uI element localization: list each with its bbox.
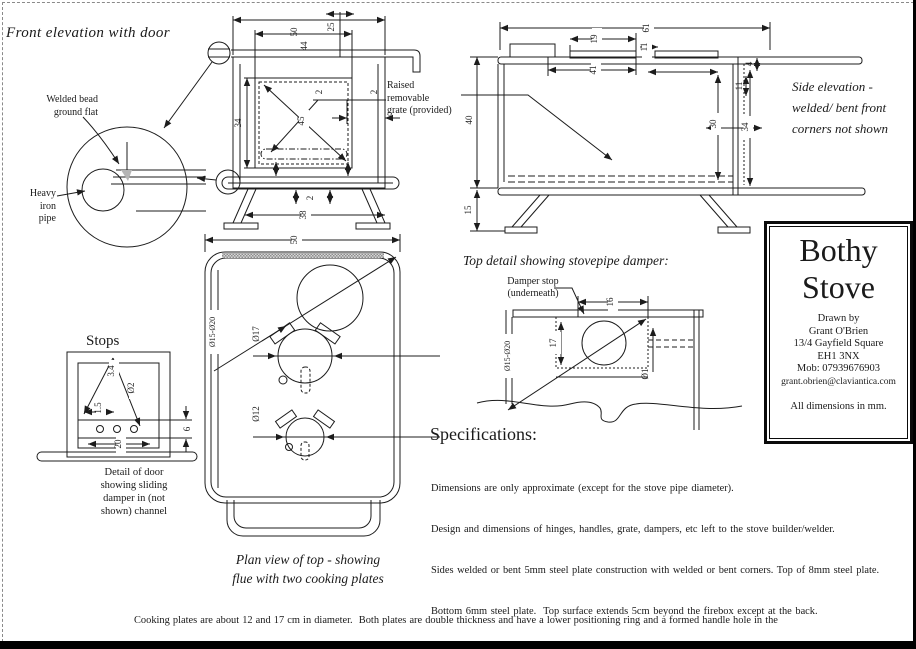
dim-front-leg-span: 38 xyxy=(298,210,308,220)
units-note: All dimensions in mm. xyxy=(770,401,907,412)
side-caption-line1: Side elevation - xyxy=(792,76,916,97)
dim-side-back-height: 34 xyxy=(740,122,750,132)
raised-grate-line2: removable xyxy=(387,93,469,106)
dim-front-gap-side: 2 xyxy=(369,90,379,95)
dim-front-door-width: 44 xyxy=(299,41,309,51)
note-line-1: Cooking plates are about 12 and 17 cm in… xyxy=(134,615,916,627)
mobile-number: Mob: 07939676903 xyxy=(770,363,907,376)
dim-plan-width: 50 xyxy=(289,235,299,245)
specifications-heading: Specifications: xyxy=(430,424,537,445)
address-line2: EH1 3NX xyxy=(770,351,907,364)
dim-stops-hole-spacing: 1.5 xyxy=(93,402,103,414)
plan-view-caption: Plan view of top - showing flue with two… xyxy=(212,550,404,588)
heavy-pipe-line3: pipe xyxy=(8,213,56,226)
heavy-pipe-line1: Heavy xyxy=(8,188,56,201)
damper-stop-line1: Damper stop xyxy=(496,276,570,288)
spec-line-3: Sides welded or bent 5mm steel plate con… xyxy=(431,564,915,578)
door-caption-line3: damper in (not xyxy=(82,492,186,505)
door-detail-caption: Detail of door showing sliding damper in… xyxy=(82,466,186,518)
right-foot-pad xyxy=(356,223,390,229)
author-name: Grant O'Brien xyxy=(770,326,907,339)
raised-grate-line1: Raised xyxy=(387,80,469,93)
dim-side-flue-gap: 30 xyxy=(708,119,718,129)
dim-stops-hole: Ø2 xyxy=(126,383,136,394)
dim-plan-small-plate: Ø12 xyxy=(251,406,261,422)
spec-line-2: Design and dimensions of hinges, handles… xyxy=(431,523,915,537)
front-elevation-title: Front elevation with door xyxy=(6,25,170,42)
pipe-detail-circle xyxy=(57,117,240,247)
page-edge-bottom xyxy=(0,641,916,649)
spec-line-1: Dimensions are only approximate (except … xyxy=(431,482,915,496)
damper-detail-title: Top detail showing stovepipe damper: xyxy=(463,253,669,269)
side-elevation-caption: Side elevation - welded/ bent front corn… xyxy=(792,76,916,139)
plan-caption-line2: flue with two cooking plates xyxy=(212,569,404,588)
dim-front-gap-bottom: 2 xyxy=(305,196,315,201)
welded-bead-line2: ground flat xyxy=(16,107,98,120)
dim-side-back-lip: 4 xyxy=(744,61,754,66)
dim-side-plate-gap: 11 xyxy=(639,43,649,52)
dim-front-width: 50 xyxy=(289,27,299,37)
damper-handle xyxy=(510,44,555,57)
raised-grate-line3: grate (provided) xyxy=(387,105,469,118)
dim-side-overall: 61 xyxy=(641,24,651,33)
dim-side-leg-height: 15 xyxy=(463,205,473,215)
flue-hole-detail xyxy=(582,321,626,365)
dim-damper-depth: 17 xyxy=(548,338,558,348)
ash-shelf-plan xyxy=(227,500,380,536)
side-caption-line3: corners not shown xyxy=(792,118,916,139)
dim-stops-slot-width: 20 xyxy=(113,439,123,449)
welded-bead-label: Welded bead ground flat xyxy=(16,94,98,119)
pipe-end-balloon xyxy=(208,42,230,64)
dim-damper-rod: Ø1 xyxy=(640,369,650,380)
pipe-cross-section xyxy=(82,169,124,211)
dim-side-plate-front: 41 xyxy=(588,66,598,75)
email-address: grant.obrien@claviantica.com xyxy=(770,376,907,388)
dim-stops-slot-height: 6 xyxy=(182,426,192,431)
damper-stop-line2: (underneath) xyxy=(496,288,570,300)
plan-caption-line1: Plan view of top - showing xyxy=(212,550,404,569)
stops-title: Stops xyxy=(86,333,119,350)
left-foot-pad xyxy=(224,223,258,229)
grate-side xyxy=(508,176,733,182)
door-caption-line4: shown) channel xyxy=(82,505,186,518)
door-caption-line2: showing sliding xyxy=(82,479,186,492)
weld-bead xyxy=(121,170,132,181)
dim-plan-large-plate: Ø17 xyxy=(251,326,261,342)
dim-front-gap-top: 2 xyxy=(314,90,324,95)
handle-slot xyxy=(301,367,310,393)
dim-side-back-offset: 11 xyxy=(734,82,744,91)
title-block: Bothy Stove Drawn by Grant O'Brien 13/4 … xyxy=(764,221,913,444)
dim-stops-spacing: 3.4 xyxy=(106,365,116,377)
address-line1: 13/4 Gayfield Square xyxy=(770,338,907,351)
product-name-line1: Bothy xyxy=(770,232,907,269)
top-surface-plan xyxy=(205,252,400,503)
bottom-plate xyxy=(498,188,865,195)
product-name-line2: Stove xyxy=(770,269,907,306)
heavy-iron-pipe-label: Heavy iron pipe xyxy=(8,188,56,226)
heavy-pipe-line2: iron xyxy=(8,201,56,214)
dim-front-door-height: 34 xyxy=(233,118,243,128)
side-caption-line2: welded/ bent front xyxy=(792,97,916,118)
damper-plate xyxy=(556,317,648,368)
title-block-inner: Bothy Stove Drawn by Grant O'Brien 13/4 … xyxy=(769,226,908,439)
dim-front-door-diagonal: 45 xyxy=(296,116,306,126)
shelf-end-balloon xyxy=(216,170,240,194)
welded-bead-line1: Welded bead xyxy=(16,94,98,107)
drawing-sheet: 50 44 25 34 45 2 2 2 38 61 19 41 11 4 11… xyxy=(0,0,916,649)
front-elevation-drawing xyxy=(164,12,420,229)
damper-stop-label: Damper stop (underneath) xyxy=(496,276,570,300)
dim-front-pipe-center: 25 xyxy=(326,22,336,32)
dim-damper-flue: Ø15-Ø20 xyxy=(503,341,512,371)
dim-damper-width: 16 xyxy=(605,297,615,307)
door-caption-line1: Detail of door xyxy=(82,466,186,479)
plan-view-drawing xyxy=(205,234,440,536)
dim-plan-flue-diameter: Ø15-Ø20 xyxy=(208,317,217,347)
raised-grate-label: Raised removable grate (provided) xyxy=(387,80,469,118)
dim-side-plate-rear: 19 xyxy=(589,34,599,44)
drawn-by-label: Drawn by xyxy=(770,313,907,326)
